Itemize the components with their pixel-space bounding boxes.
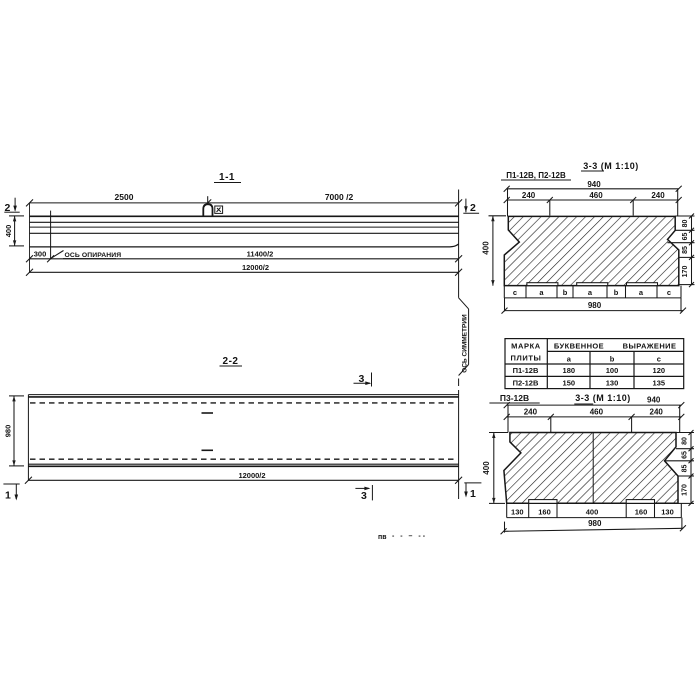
svg-text:65: 65 [682, 233, 689, 241]
svg-text:940: 940 [647, 396, 661, 405]
svg-text:400: 400 [586, 508, 599, 517]
svg-text:b: b [563, 288, 568, 297]
svg-text:П3-12В: П3-12В [500, 393, 529, 403]
svg-text:с: с [667, 288, 671, 297]
svg-text:а: а [639, 288, 644, 297]
svg-text:ВЫРАЖЕНИЕ: ВЫРАЖЕНИЕ [623, 342, 677, 351]
svg-text:300: 300 [34, 250, 47, 259]
svg-text:b: b [610, 355, 615, 364]
svg-text:130: 130 [511, 508, 524, 517]
svg-text:П1-12В: П1-12В [513, 366, 539, 375]
svg-text:12000/2: 12000/2 [238, 471, 265, 480]
svg-text:b: b [614, 288, 619, 297]
svg-text:1-1: 1-1 [219, 172, 235, 183]
svg-text:7000 /2: 7000 /2 [325, 192, 354, 202]
svg-text:170: 170 [682, 266, 689, 278]
svg-text:2500: 2500 [115, 192, 134, 202]
svg-text:П2-12В: П2-12В [513, 379, 539, 388]
svg-text:3-3 (М 1:10): 3-3 (М 1:10) [583, 161, 639, 171]
svg-text:пв: пв [378, 534, 387, 541]
svg-text:100: 100 [606, 366, 619, 375]
svg-text:3: 3 [361, 490, 367, 502]
svg-text:240: 240 [651, 191, 665, 200]
svg-text:400: 400 [482, 461, 491, 475]
svg-text:3-3 (М 1:10): 3-3 (М 1:10) [575, 393, 631, 403]
svg-text:150: 150 [563, 379, 576, 388]
svg-text:а: а [588, 288, 593, 297]
svg-text:65: 65 [682, 451, 689, 459]
svg-text:2: 2 [470, 202, 476, 214]
svg-text:с: с [513, 288, 517, 297]
svg-text:85: 85 [682, 465, 689, 473]
svg-text:460: 460 [590, 408, 604, 417]
svg-text:а: а [567, 355, 572, 364]
svg-text:240: 240 [522, 191, 536, 200]
svg-text:460: 460 [589, 191, 603, 200]
svg-text:180: 180 [563, 366, 576, 375]
svg-text:МАРКА: МАРКА [511, 342, 541, 351]
svg-text:11400/2: 11400/2 [247, 250, 274, 259]
svg-text:130: 130 [661, 508, 674, 517]
svg-text:80: 80 [682, 437, 689, 445]
svg-text:400: 400 [482, 241, 491, 255]
svg-text:240: 240 [524, 408, 538, 417]
svg-text:ПЛИТЫ: ПЛИТЫ [511, 354, 542, 363]
svg-text:940: 940 [587, 180, 601, 189]
svg-text:120: 120 [653, 366, 666, 375]
svg-text:80: 80 [682, 220, 689, 228]
svg-text:85: 85 [682, 246, 689, 254]
svg-text:980: 980 [588, 301, 602, 310]
svg-text:ОСЬ ОПИРАНИЯ: ОСЬ ОПИРАНИЯ [65, 252, 122, 259]
svg-text:980: 980 [588, 519, 602, 528]
svg-text:2-2: 2-2 [223, 356, 239, 367]
svg-text:ОСЬ СИММЕТРИИ: ОСЬ СИММЕТРИИ [462, 314, 469, 373]
svg-text:БУКВЕННОЕ: БУКВЕННОЕ [554, 342, 604, 351]
svg-text:1: 1 [5, 490, 11, 502]
svg-text:980: 980 [4, 425, 13, 438]
svg-text:135: 135 [653, 379, 666, 388]
svg-text:П1-12В, П2-12В: П1-12В, П2-12В [506, 171, 566, 180]
svg-text:160: 160 [538, 508, 551, 517]
svg-text:а: а [539, 288, 544, 297]
svg-text:160: 160 [635, 508, 648, 517]
svg-text:- - – --: - - – -- [392, 533, 427, 540]
svg-text:с: с [657, 355, 661, 364]
svg-text:1: 1 [470, 488, 476, 500]
svg-text:240: 240 [650, 408, 664, 417]
svg-text:130: 130 [606, 379, 619, 388]
svg-text:400: 400 [4, 225, 13, 238]
svg-text:170: 170 [682, 484, 689, 496]
svg-text:12000/2: 12000/2 [242, 263, 269, 272]
